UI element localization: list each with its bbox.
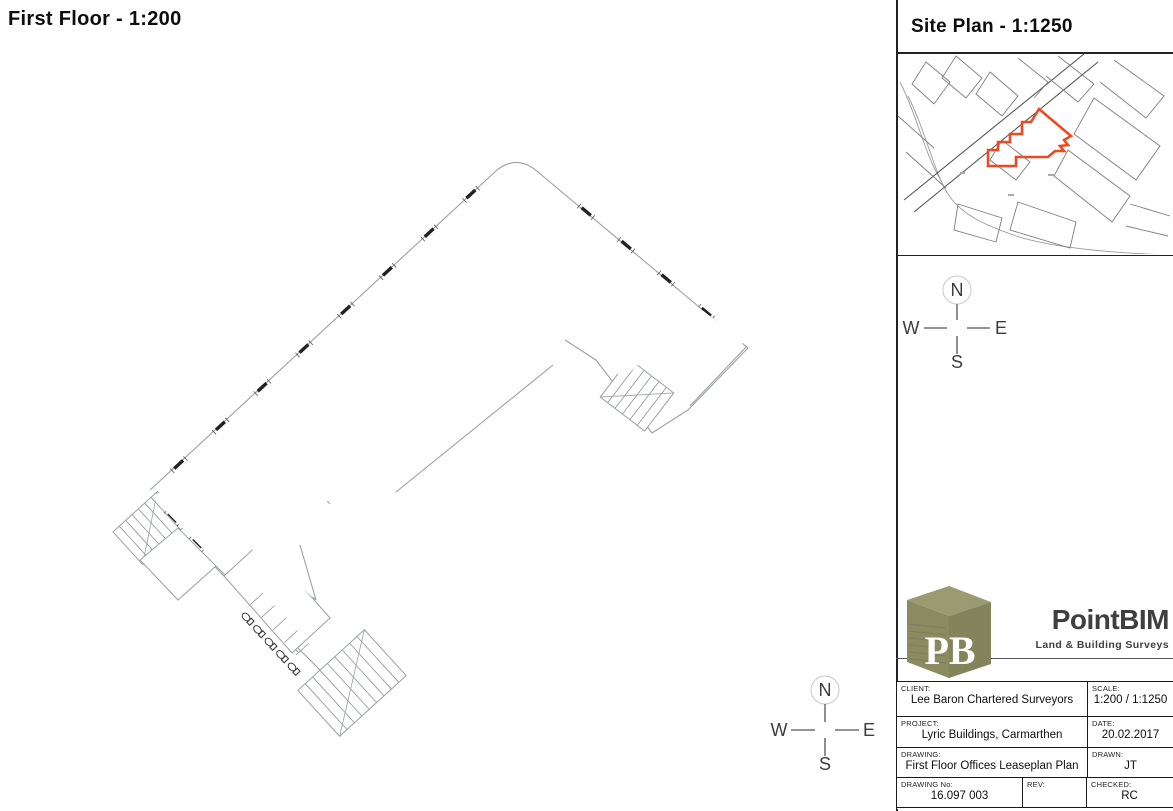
title-block-row: DRAWING No: 16.097 003 REV: CHECKED: RC xyxy=(897,778,1173,808)
project-cell: PROJECT: Lyric Buildings, Carmarthen xyxy=(897,717,1087,747)
drawn-label: DRAWN: xyxy=(1088,748,1173,759)
project-value: Lyric Buildings, Carmarthen xyxy=(897,729,1087,741)
compass-n: N xyxy=(951,280,964,300)
checked-cell: CHECKED: RC xyxy=(1086,778,1172,807)
client-value: Lee Baron Chartered Surveyors xyxy=(897,694,1087,706)
drawing-no-cell: DRAWING No: 16.097 003 xyxy=(897,778,1022,807)
scale-cell: SCALE: 1:200 / 1:1250 xyxy=(1087,682,1173,716)
site-plan-bottom-rule xyxy=(896,255,1173,256)
drawing-no-label: DRAWING No: xyxy=(897,778,1022,789)
compass-e: E xyxy=(995,318,1007,338)
drawn-value: JT xyxy=(1088,760,1173,772)
logo-tagline: Land & Building Surveys xyxy=(997,639,1169,651)
title-block: CLIENT: Lee Baron Chartered Surveyors SC… xyxy=(896,681,1173,809)
date-cell: DATE: 20.02.2017 xyxy=(1087,717,1173,747)
checked-label: CHECKED: xyxy=(1087,778,1172,789)
checked-value: RC xyxy=(1087,790,1172,802)
drawing-value: First Floor Offices Leaseplan Plan xyxy=(897,760,1087,772)
pointbim-logo-cube: PB xyxy=(899,580,994,680)
title-block-row: DRAWING: First Floor Offices Leaseplan P… xyxy=(897,748,1173,778)
compass-n: N xyxy=(819,680,832,700)
rev-cell: REV: xyxy=(1022,778,1086,807)
date-label: DATE: xyxy=(1088,717,1173,728)
compass-w: W xyxy=(771,720,788,740)
client-cell: CLIENT: Lee Baron Chartered Surveyors xyxy=(897,682,1087,716)
title-block-row: PROJECT: Lyric Buildings, Carmarthen DAT… xyxy=(897,717,1173,748)
drawn-cell: DRAWN: JT xyxy=(1087,748,1173,777)
project-label: PROJECT: xyxy=(897,717,1087,728)
compass-s: S xyxy=(951,352,963,372)
compass-s: S xyxy=(819,754,831,774)
date-value: 20.02.2017 xyxy=(1088,729,1173,741)
scale-value: 1:200 / 1:1250 xyxy=(1088,694,1173,706)
drawing-cell: DRAWING: First Floor Offices Leaseplan P… xyxy=(897,748,1087,777)
compass-w: W xyxy=(903,318,920,338)
logo-name: PointBIM xyxy=(997,604,1169,636)
site-plan-title: Site Plan - 1:1250 xyxy=(911,16,1073,38)
client-label: CLIENT: xyxy=(897,682,1087,693)
drawing-label: DRAWING: xyxy=(897,748,1087,759)
compass-e: E xyxy=(863,720,875,740)
scale-label: SCALE: xyxy=(1088,682,1173,693)
compass-rose-main: N W E S xyxy=(765,662,885,787)
rev-label: REV: xyxy=(1023,778,1086,789)
logo-monogram: PB xyxy=(924,628,975,673)
compass-rose-panel: N W E S xyxy=(900,268,1015,383)
drawing-no-value: 16.097 003 xyxy=(897,790,1022,802)
drawing-sheet: { "main": { "title": "First Floor - 1:20… xyxy=(0,0,1173,811)
title-block-row: CLIENT: Lee Baron Chartered Surveyors SC… xyxy=(897,682,1173,717)
site-plan-map xyxy=(898,54,1173,254)
